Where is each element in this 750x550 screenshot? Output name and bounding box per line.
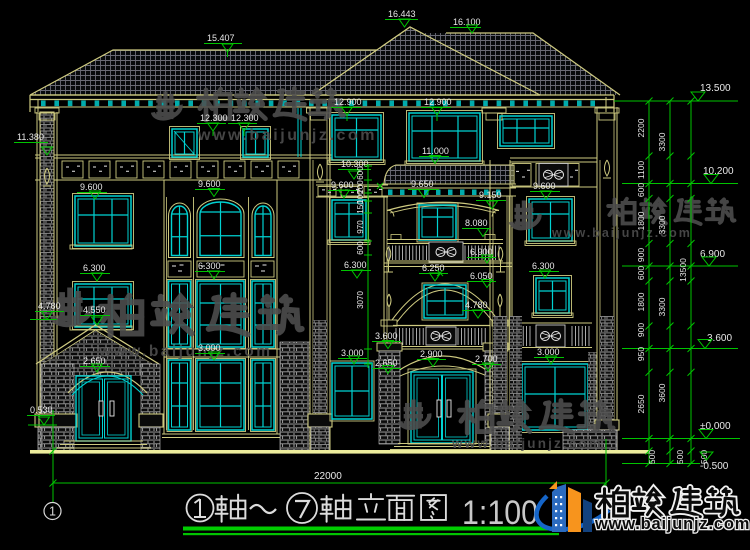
svg-text:150: 150 (356, 200, 365, 214)
svg-text:950: 950 (636, 347, 646, 361)
svg-text:4.780: 4.780 (465, 300, 488, 310)
svg-text:www.baijunjz.com: www.baijunjz.com (551, 226, 692, 240)
svg-text:9.650: 9.650 (411, 179, 434, 189)
svg-text:-0.500: -0.500 (700, 461, 729, 472)
svg-text:1:100: 1:100 (462, 494, 538, 532)
svg-text:12.900: 12.900 (334, 97, 362, 107)
svg-text:600: 600 (636, 183, 646, 197)
svg-text:500: 500 (647, 450, 657, 464)
svg-text:900: 900 (636, 248, 646, 262)
svg-text:11.000: 11.000 (422, 146, 449, 156)
svg-text:3600: 3600 (657, 383, 667, 402)
svg-text:3070: 3070 (356, 291, 365, 309)
svg-text:3.600: 3.600 (707, 333, 732, 344)
svg-text:4.780: 4.780 (38, 301, 61, 311)
svg-text:9.600: 9.600 (198, 179, 221, 189)
svg-text:970: 970 (356, 220, 365, 234)
svg-text:3300: 3300 (657, 297, 667, 316)
svg-text:www.baijunjz.com: www.baijunjz.com (594, 515, 750, 533)
svg-text:12.300: 12.300 (200, 113, 228, 123)
svg-text:3300: 3300 (657, 215, 667, 234)
svg-text:2650: 2650 (636, 394, 646, 413)
svg-text:3.600: 3.600 (375, 331, 398, 341)
svg-text:8.080: 8.080 (465, 218, 488, 228)
svg-text:500: 500 (675, 450, 685, 464)
svg-text:600: 600 (356, 166, 365, 180)
svg-text:6.300: 6.300 (198, 261, 221, 271)
svg-text:900: 900 (636, 323, 646, 337)
svg-text:6.300: 6.300 (344, 260, 367, 270)
svg-text:12.900: 12.900 (424, 97, 452, 107)
svg-text:9.600: 9.600 (533, 181, 556, 191)
svg-text:1800: 1800 (636, 211, 646, 230)
svg-text:2.900: 2.900 (420, 349, 443, 359)
svg-text:www.baijunjz.com: www.baijunjz.com (451, 436, 603, 451)
svg-text:www.baijunjz.com: www.baijunjz.com (98, 343, 272, 360)
svg-text:600: 600 (356, 241, 365, 255)
svg-text:15.407: 15.407 (207, 33, 235, 43)
svg-text:11.380: 11.380 (17, 132, 44, 142)
svg-text:0.530: 0.530 (30, 405, 53, 415)
svg-text:1100: 1100 (636, 161, 646, 180)
svg-text:13500: 13500 (678, 258, 688, 282)
svg-text:2.650: 2.650 (375, 358, 398, 368)
svg-text:1800: 1800 (636, 292, 646, 311)
svg-text:±0.000: ±0.000 (700, 421, 731, 432)
svg-text:9.150: 9.150 (479, 190, 502, 200)
svg-text:www.baijunjz.com: www.baijunjz.com (197, 127, 377, 144)
svg-text:10.200: 10.200 (703, 166, 734, 177)
svg-text:6.900: 6.900 (700, 249, 725, 260)
svg-text:6.300: 6.300 (83, 263, 106, 273)
svg-text:9.600: 9.600 (331, 180, 354, 190)
svg-text:2200: 2200 (636, 118, 646, 137)
svg-text:4.550: 4.550 (83, 305, 106, 315)
svg-text:16.443: 16.443 (388, 9, 416, 19)
svg-text:12.300: 12.300 (231, 113, 259, 123)
svg-text:3300: 3300 (657, 132, 667, 151)
svg-text:600: 600 (636, 266, 646, 280)
svg-text:22000: 22000 (314, 471, 342, 482)
svg-text:1: 1 (49, 505, 56, 519)
